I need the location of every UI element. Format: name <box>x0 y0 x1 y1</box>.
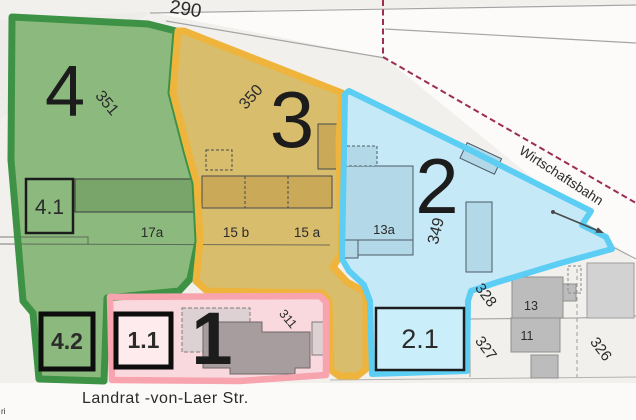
building-right-edge <box>587 263 634 318</box>
zone-3-number: 3 <box>270 75 315 164</box>
street-edge-line <box>330 377 636 380</box>
building-11 <box>511 318 560 352</box>
site-plan-map: 4 3 2 1 351 350 349 311 290 328 327 326 … <box>0 0 636 420</box>
house-15b-label: 15 b <box>223 225 249 240</box>
building-13a-dashed-top <box>342 146 377 166</box>
street-name-label: Landrat -von-Laer Str. <box>82 390 249 407</box>
building-11-annex <box>531 355 558 378</box>
building-13a-annex-right <box>358 240 413 255</box>
building-15 <box>202 176 332 208</box>
building-blue-tall <box>466 202 492 272</box>
map-canvas: 4 3 2 1 351 350 349 311 290 328 327 326 … <box>0 0 636 420</box>
subarea-1-1-label: 1.1 <box>128 327 160 353</box>
house-15a-label: 15 a <box>294 225 321 240</box>
house-13-label: 13 <box>524 299 538 313</box>
parcel-326-label: 326 <box>586 334 615 364</box>
subarea-4-2-label: 4.2 <box>51 328 83 354</box>
house-13a-label: 13a <box>373 222 395 237</box>
subarea-4-1-label: 4.1 <box>35 196 64 219</box>
subarea-2-1-label: 2.1 <box>401 324 439 354</box>
map-attribution: ri <box>1 407 6 416</box>
house-17a-label: 17a <box>141 225 164 240</box>
parcel-290-label: 290 <box>168 0 203 22</box>
zone-1-number: 1 <box>191 297 232 380</box>
zone-4-number: 4 <box>45 52 85 132</box>
zone-2-number: 2 <box>415 142 458 230</box>
building-17a <box>75 179 198 212</box>
building-yellow-small <box>318 124 338 169</box>
house-11-label: 11 <box>521 329 534 343</box>
buildings-bottom-right <box>511 263 634 378</box>
parcel-327-label: 327 <box>471 333 500 363</box>
